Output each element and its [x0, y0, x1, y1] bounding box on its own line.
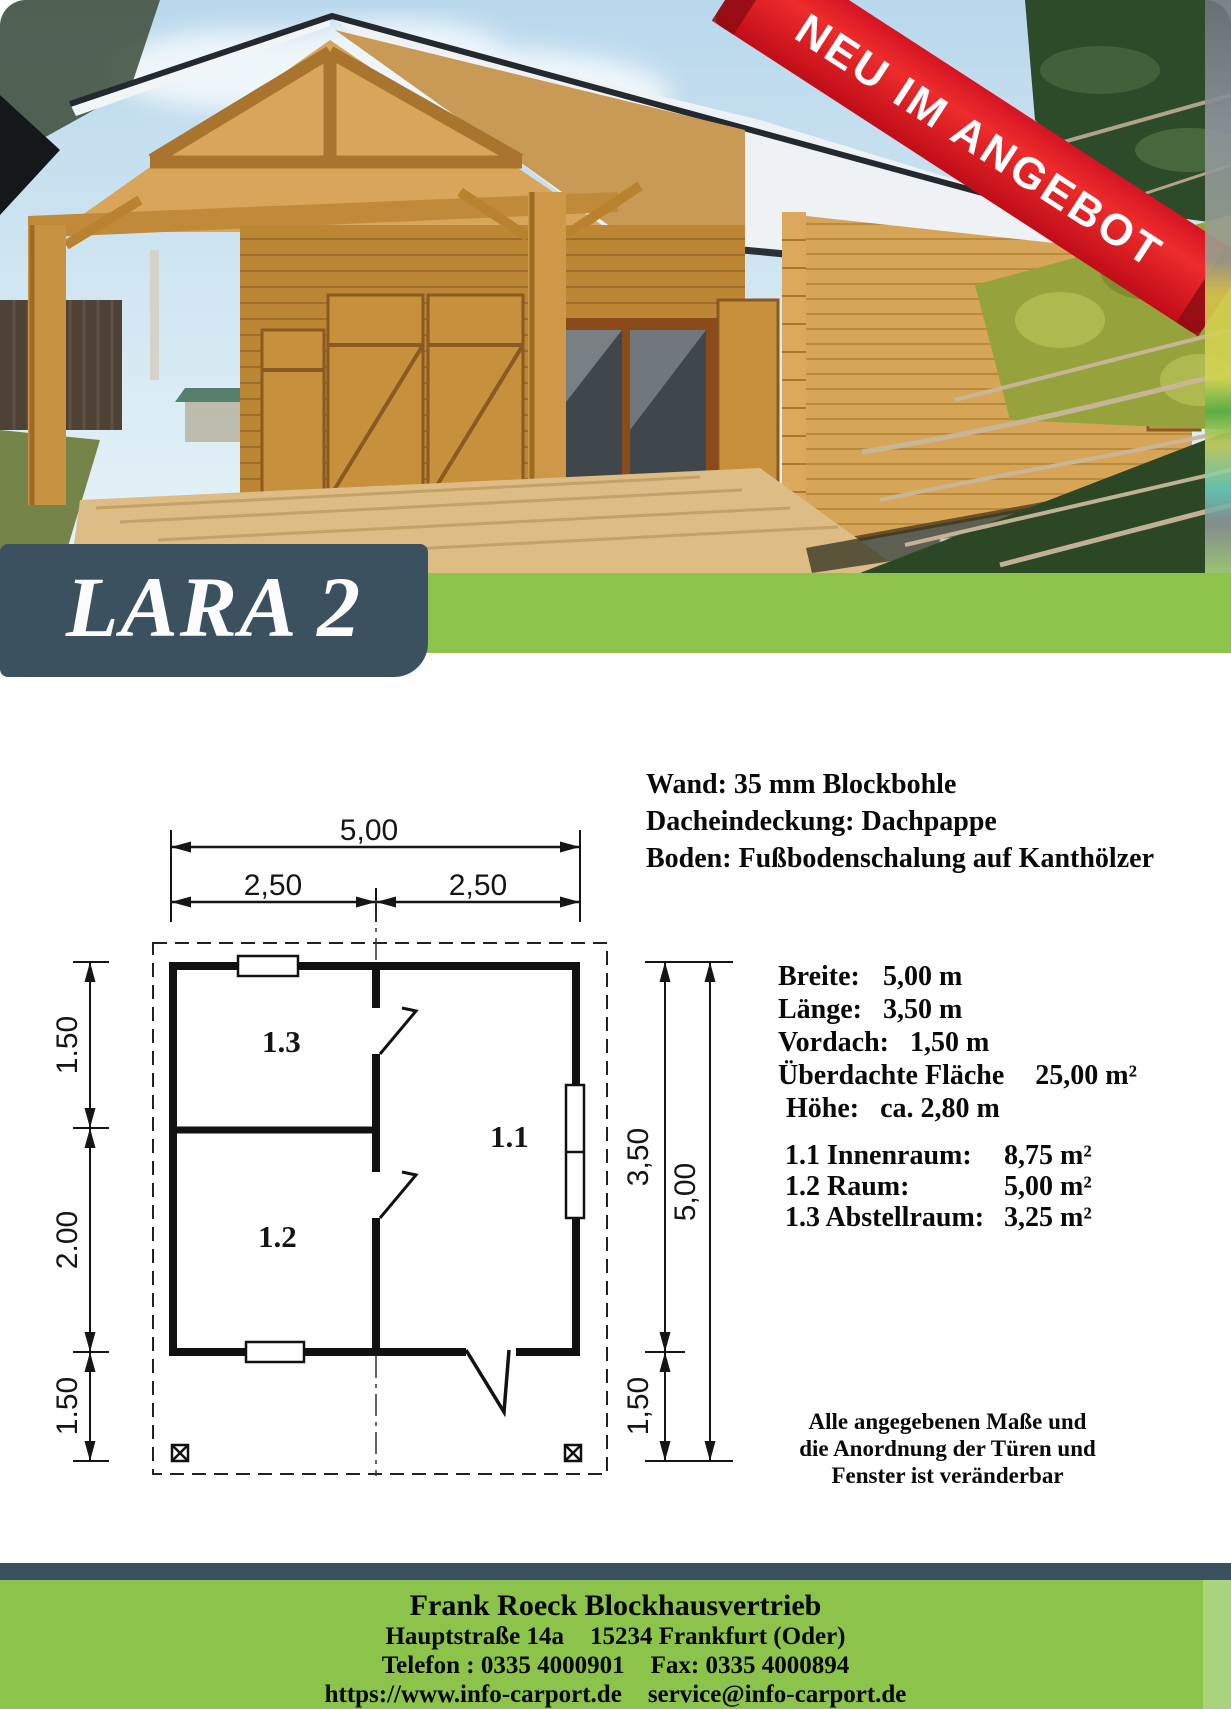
- floor-plan: 5,00 2,50 2,50: [45, 800, 745, 1500]
- dim-left-top-label: 1.50: [51, 1016, 84, 1074]
- dim-total-width-label: 5,00: [340, 814, 398, 847]
- dimension-row: Vordach: 1,50 m: [778, 1026, 1137, 1059]
- footer-divider-bar: [0, 1563, 1231, 1580]
- model-title-badge: LARA 2: [0, 544, 428, 677]
- dimension-row: Breite: 5,00 m: [778, 960, 1137, 993]
- room-row: 1.2 Raum: 5,00 m²: [785, 1171, 1092, 1202]
- dim-left-half-label: 2,50: [244, 869, 302, 902]
- dim-right-half-label: 2,50: [449, 869, 507, 902]
- cabin-photo: NEU IM ANGEBOT: [0, 0, 1231, 573]
- footer-address: Hauptstraße 14a 15234 Frankfurt (Oder): [0, 1622, 1231, 1651]
- dim-left-mid-label: 2.00: [51, 1211, 84, 1269]
- title-green-band: [418, 573, 1231, 653]
- room-label-11: 1.1: [490, 1119, 529, 1154]
- footer-edge-artifact: [1203, 1580, 1231, 1709]
- dim-left-bottom-label: 1.50: [51, 1377, 84, 1435]
- dimension-row: Länge: 3,50 m: [778, 993, 1137, 1026]
- building-dimensions: Breite: 5,00 m Länge: 3,50 m Vordach: 1,…: [778, 960, 1137, 1125]
- dim-right-inner-label: 3,50: [622, 1128, 655, 1186]
- dim-right-bottom-label: 1,50: [622, 1377, 655, 1435]
- room-label-12: 1.2: [258, 1219, 297, 1254]
- dim-right-outer-label: 5,00: [669, 1163, 702, 1221]
- spec-wall: Wand: 35 mm Blockbohle: [646, 766, 1154, 803]
- room-areas: 1.1 Innenraum: 8,75 m² 1.2 Raum: 5,00 m²…: [785, 1140, 1092, 1233]
- flyer-page: NEU IM ANGEBOT LARA 2 Wand: 35 mm Blockb…: [0, 0, 1231, 1709]
- footer: Frank Roeck Blockhausvertrieb Hauptstraß…: [0, 1580, 1231, 1709]
- room-row: 1.3 Abstellraum: 3,25 m²: [785, 1202, 1092, 1233]
- footer-web-email: https://www.info-carport.de service@info…: [0, 1680, 1231, 1709]
- footer-company: Frank Roeck Blockhausvertrieb: [0, 1589, 1231, 1622]
- cabin-photo-art: NEU IM ANGEBOT: [0, 0, 1231, 573]
- footer-email: service@info-carport.de: [648, 1680, 907, 1709]
- scan-edge-artifact: [1205, 0, 1231, 653]
- dimension-row: Höhe: ca. 2,80 m: [778, 1092, 1137, 1125]
- room-label-13: 1.3: [262, 1024, 301, 1059]
- room-row: 1.1 Innenraum: 8,75 m²: [785, 1140, 1092, 1171]
- footer-website: https://www.info-carport.de: [325, 1680, 622, 1709]
- footer-phone-fax: Telefon : 0335 4000901 Fax: 0335 4000894: [0, 1651, 1231, 1680]
- disclaimer-note: Alle angegebenen Maße und die Anordnung …: [775, 1408, 1120, 1489]
- page-title: LARA 2: [66, 557, 362, 665]
- dimension-row: Überdachte Fläche 25,00 m²: [778, 1059, 1137, 1092]
